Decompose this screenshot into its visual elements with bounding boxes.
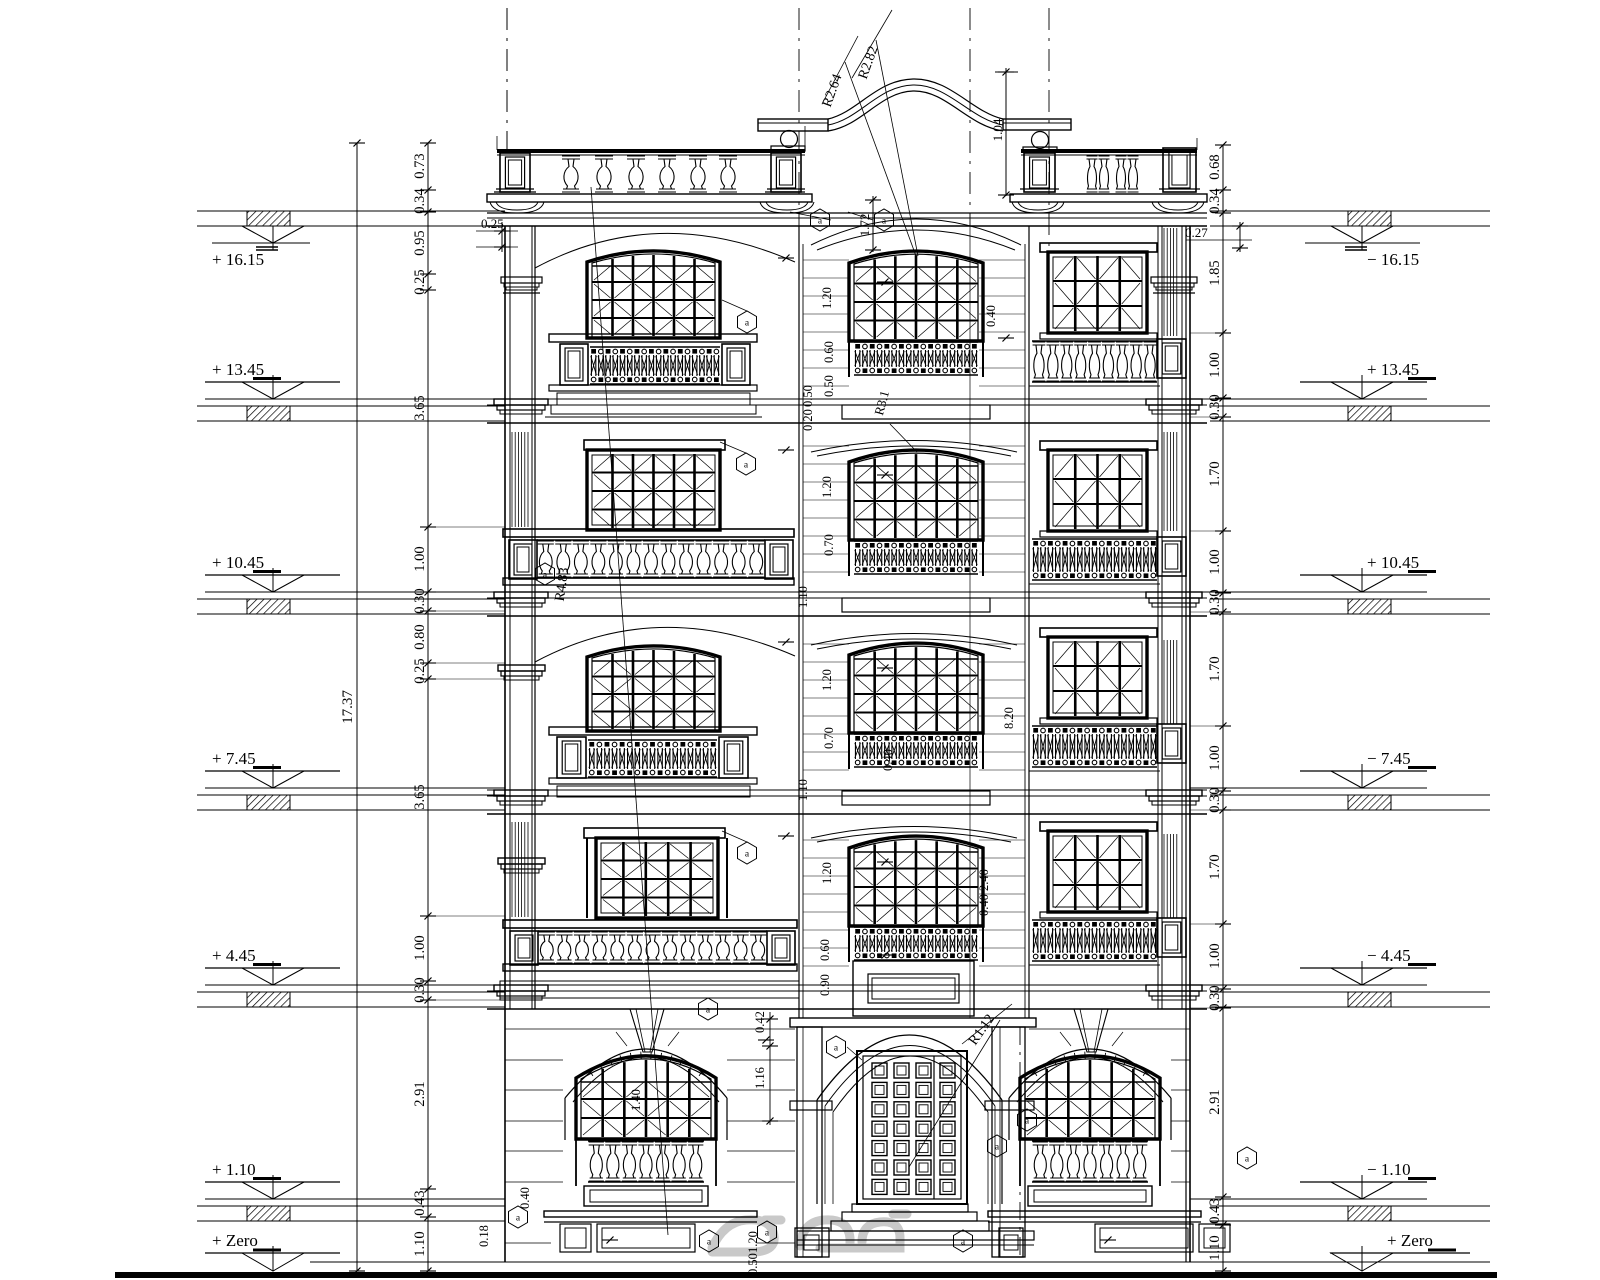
svg-text:1.40: 1.40 bbox=[629, 1089, 643, 1111]
svg-text:17.37: 17.37 bbox=[340, 690, 356, 724]
svg-text:0.40: 0.40 bbox=[518, 1187, 532, 1209]
svg-text:0.40: 0.40 bbox=[984, 305, 998, 327]
svg-text:0.60: 0.60 bbox=[822, 341, 836, 363]
svg-text:2.91: 2.91 bbox=[1207, 1089, 1223, 1114]
svg-text:0.50: 0.50 bbox=[801, 385, 815, 407]
svg-text:0.25: 0.25 bbox=[412, 658, 428, 683]
svg-text:+ 16.15: + 16.15 bbox=[212, 250, 264, 269]
svg-text:1.20: 1.20 bbox=[820, 669, 834, 691]
svg-text:0.40: 0.40 bbox=[977, 894, 991, 916]
svg-text:2.91: 2.91 bbox=[412, 1081, 428, 1106]
svg-text:0.34: 0.34 bbox=[412, 188, 428, 214]
svg-text:1.20: 1.20 bbox=[820, 476, 834, 498]
svg-text:0.27: 0.27 bbox=[1185, 225, 1208, 240]
svg-text:− 4.45: − 4.45 bbox=[1367, 946, 1411, 965]
svg-text:2.40: 2.40 bbox=[977, 869, 991, 891]
svg-text:0.90: 0.90 bbox=[818, 974, 832, 996]
svg-text:1.70: 1.70 bbox=[1207, 461, 1223, 486]
svg-text:1.16: 1.16 bbox=[753, 1067, 767, 1089]
svg-text:1.00: 1.00 bbox=[412, 546, 428, 571]
svg-text:− 16.15: − 16.15 bbox=[1367, 250, 1419, 269]
svg-text:+ 4.45: + 4.45 bbox=[212, 946, 256, 965]
svg-text:+ 1.10: + 1.10 bbox=[212, 1160, 256, 1179]
svg-text:1.20: 1.20 bbox=[820, 287, 834, 309]
svg-text:0.95: 0.95 bbox=[412, 230, 428, 255]
svg-text:− 7.45: − 7.45 bbox=[1367, 749, 1411, 768]
svg-text:+ 13.45: + 13.45 bbox=[212, 360, 264, 379]
svg-text:0.30: 0.30 bbox=[412, 588, 428, 613]
svg-text:+ Zero: + Zero bbox=[1387, 1231, 1433, 1250]
svg-text:0.34: 0.34 bbox=[1207, 188, 1223, 214]
svg-text:0.43: 0.43 bbox=[412, 1190, 428, 1215]
svg-text:0.70: 0.70 bbox=[822, 727, 836, 749]
svg-text:0.30: 0.30 bbox=[1207, 394, 1223, 419]
svg-text:0.30: 0.30 bbox=[1207, 787, 1223, 812]
svg-text:1.85: 1.85 bbox=[1207, 260, 1223, 285]
svg-text:0.80: 0.80 bbox=[412, 624, 428, 649]
svg-text:3.65: 3.65 bbox=[412, 784, 428, 809]
svg-text:0.25: 0.25 bbox=[412, 269, 428, 294]
svg-text:0.42: 0.42 bbox=[753, 1011, 767, 1033]
svg-text:1.10: 1.10 bbox=[796, 779, 810, 801]
svg-text:1.00: 1.00 bbox=[1207, 943, 1223, 968]
svg-text:0.60: 0.60 bbox=[818, 939, 832, 961]
svg-text:0.70: 0.70 bbox=[822, 534, 836, 556]
svg-text:+ 13.45: + 13.45 bbox=[1367, 360, 1419, 379]
svg-text:0.50: 0.50 bbox=[746, 1253, 760, 1275]
svg-text:1.70: 1.70 bbox=[1207, 854, 1223, 879]
svg-text:− 1.10: − 1.10 bbox=[1367, 1160, 1411, 1179]
svg-text:0.50: 0.50 bbox=[822, 375, 836, 397]
svg-text:0.30: 0.30 bbox=[1207, 985, 1223, 1010]
svg-text:3.65: 3.65 bbox=[412, 395, 428, 420]
svg-text:1.00: 1.00 bbox=[1207, 352, 1223, 377]
svg-text:1.10: 1.10 bbox=[1207, 1235, 1223, 1260]
svg-text:+ 7.45: + 7.45 bbox=[212, 749, 256, 768]
svg-text:1.04: 1.04 bbox=[990, 118, 1005, 141]
svg-text:1.00: 1.00 bbox=[1207, 745, 1223, 770]
svg-text:1.00: 1.00 bbox=[1207, 549, 1223, 574]
svg-text:1.10: 1.10 bbox=[796, 586, 810, 608]
svg-text:1.20: 1.20 bbox=[820, 862, 834, 884]
svg-text:0.43: 0.43 bbox=[1207, 1198, 1223, 1223]
svg-text:+ Zero: + Zero bbox=[212, 1231, 258, 1250]
svg-text:+ 10.45: + 10.45 bbox=[212, 553, 264, 572]
svg-text:0.30: 0.30 bbox=[1207, 589, 1223, 614]
svg-text:0.68: 0.68 bbox=[1207, 154, 1223, 179]
svg-text:0.30: 0.30 bbox=[412, 977, 428, 1002]
svg-text:+ 10.45: + 10.45 bbox=[1367, 553, 1419, 572]
svg-text:0.18: 0.18 bbox=[477, 1225, 491, 1247]
svg-text:0.40: 0.40 bbox=[881, 749, 895, 771]
svg-text:0.73: 0.73 bbox=[412, 153, 428, 178]
svg-text:1.10: 1.10 bbox=[412, 1231, 428, 1256]
svg-text:1.70: 1.70 bbox=[1207, 656, 1223, 681]
svg-text:8.20: 8.20 bbox=[1002, 707, 1016, 729]
svg-text:0.20: 0.20 bbox=[801, 409, 815, 431]
svg-text:0.25: 0.25 bbox=[481, 216, 504, 231]
svg-text:1.00: 1.00 bbox=[412, 935, 428, 960]
